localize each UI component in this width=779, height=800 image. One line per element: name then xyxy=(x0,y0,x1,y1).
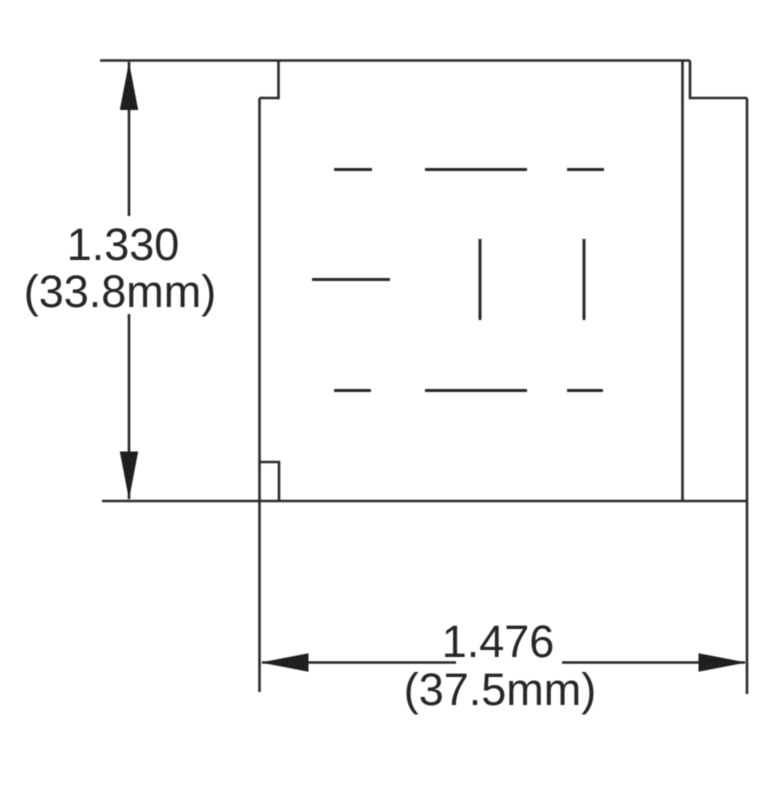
svg-text:(37.5mm): (37.5mm) xyxy=(404,664,597,715)
svg-text:1.476: 1.476 xyxy=(442,616,555,667)
svg-text:1.330: 1.330 xyxy=(67,219,180,270)
svg-text:(33.8mm): (33.8mm) xyxy=(24,266,217,317)
